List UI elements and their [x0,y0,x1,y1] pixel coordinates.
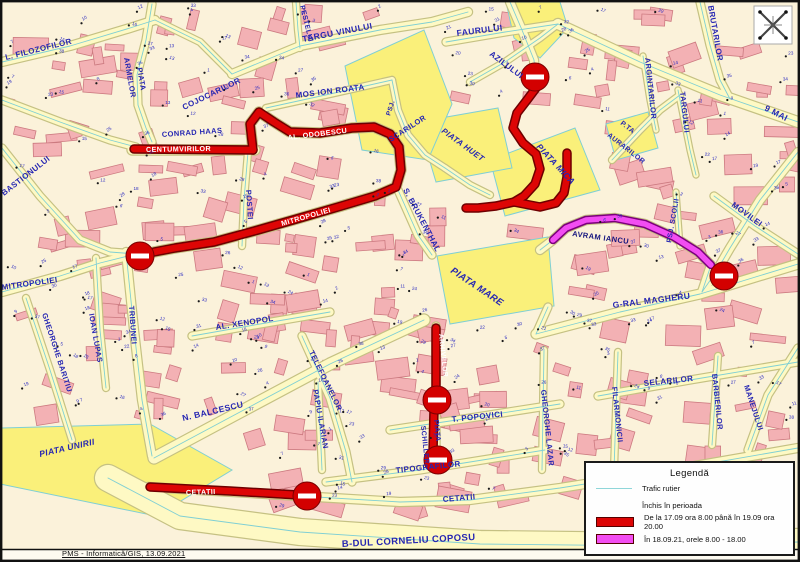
house-dot [329,498,331,500]
house-dot [275,506,277,508]
house-number: 13 [165,100,171,105]
house-dot [628,245,630,247]
legend-item-label: De la 17.09 ora 8.00 până în 19.09 ora 2… [644,513,793,531]
house-dot [772,382,774,384]
house-dot [136,11,138,13]
house-dot [45,97,47,99]
building [775,275,800,293]
house-dot [55,52,57,54]
house-dot [723,138,725,140]
house-dot [378,351,380,353]
house-dot [243,225,245,227]
building [34,404,59,426]
building [381,287,394,297]
house-dot [396,269,398,271]
house-dot [221,36,223,38]
house-dot [239,333,241,335]
house-dot [377,10,379,12]
house-dot [538,384,540,386]
building [326,330,337,347]
house-dot [726,99,728,101]
building [149,177,178,196]
legend-item-label: Trafic rutier [642,484,680,493]
building [641,14,665,26]
house-dot [656,260,658,262]
legend-item-label: Închis în perioada [642,501,702,510]
house-dot [559,447,561,449]
house-dot [628,323,630,325]
house-dot [297,13,299,15]
house-dot [189,13,191,15]
house-dot [187,7,189,9]
house-dot [779,81,781,83]
house-number: 18 [133,186,139,191]
house-dot [789,406,791,408]
legend-panel: Legendă Trafic rutier Închis în perioada… [584,461,795,556]
house-dot [369,151,371,153]
house-dot [398,254,400,256]
house-dot [266,302,268,304]
map-document: 2442616233110333112538212753323152034222… [0,0,800,562]
house-dot [771,190,773,192]
house-dot [643,389,645,391]
house-dot [97,182,99,184]
house-dot [377,470,379,472]
house-dot [476,329,478,331]
house-dot [83,298,85,300]
house-dot [295,72,297,74]
attribution-text: PMS - Informatică/GIS, 13.09.2021 [62,549,185,558]
house-dot [419,233,421,235]
no-entry-bar [131,254,149,259]
house-dot [430,437,432,439]
building [322,256,339,272]
house-dot [589,327,591,329]
house-dot [342,411,344,413]
house-dot [307,360,309,362]
house-dot [203,72,205,74]
house-dot [247,282,249,284]
house-dot [236,393,238,395]
building [105,44,124,51]
house-dot [727,384,729,386]
house-dot [675,193,677,195]
house-number: 34 [783,76,789,81]
building [321,109,340,127]
house-dot [715,309,717,311]
house-dot [538,352,540,354]
house-dot [393,323,395,325]
house-dot [714,254,716,256]
house-dot [310,83,312,85]
house-dot [9,45,11,47]
house-dot [123,335,125,337]
building [221,363,245,374]
house-dot [750,345,752,347]
house-dot [159,418,161,420]
house-dot [327,190,329,192]
house-number: 26 [225,250,231,255]
house-dot [197,192,199,194]
building [52,61,66,71]
house-number: 33 [617,213,623,218]
building [656,81,669,92]
house-dot [485,11,487,13]
building [139,165,163,173]
house-dot [334,490,336,492]
house-dot [280,95,282,97]
house-dot [464,75,466,77]
building [285,234,295,243]
house-dot [262,177,264,179]
house-dot [75,404,77,406]
house-dot [737,264,739,266]
house-dot [83,312,85,314]
house-dot [241,59,243,61]
house-dot [773,165,775,167]
building [764,126,800,137]
house-dot [336,365,338,367]
house-dot [165,58,167,60]
building [568,57,588,69]
house-dot [488,488,490,490]
house-dot [80,22,82,24]
house-dot [114,341,116,343]
house-dot [564,450,566,452]
house-number: 17 [712,156,718,161]
house-dot [417,371,419,373]
building [665,325,701,347]
no-entry-bar [526,75,544,80]
house-number: 37 [248,406,254,412]
house-dot [510,230,512,232]
house-dot [214,135,216,137]
house-dot [55,92,57,94]
traffic-line-swatch [596,488,632,489]
house-dot [144,45,146,47]
house-dot [40,265,42,267]
house-dot [313,444,315,446]
house-dot [275,59,277,61]
house-dot [79,355,81,357]
house-dot [115,206,117,208]
house-dot [324,241,326,243]
house-dot [320,303,322,305]
no-entry-bar [428,398,446,403]
house-number: 12 [100,178,106,183]
house-dot [604,356,606,358]
house-dot [315,382,317,384]
house-dot [671,83,673,85]
house-dot [70,270,72,272]
house-dot [640,245,642,247]
house-dot [283,291,285,293]
house-dot [162,104,164,106]
house-dot [105,133,107,135]
house-dot [254,373,256,375]
house-dot [336,484,338,486]
house-dot [260,283,262,285]
house-number: 15 [488,6,494,11]
house-dot [452,54,454,56]
legend-title: Legendă [586,468,793,479]
house-dot [480,405,482,407]
house-dot [705,240,707,242]
building [285,243,297,253]
house-dot [69,354,71,356]
house-dot [121,349,123,351]
house-dot [78,403,80,405]
house-dot [419,313,421,315]
house-dot [255,340,257,342]
house-dot [326,158,328,160]
legend-item-traffic: Trafic rutier [596,480,793,496]
house-dot [95,82,97,84]
house-dot [358,441,360,443]
house-dot [723,78,725,80]
building [33,142,62,156]
house-dot [583,54,585,56]
house-number: 23 [332,492,338,497]
house-dot [408,290,410,292]
house-dot [307,415,309,417]
building [683,401,711,424]
house-dot [156,319,158,321]
house-dot [655,401,657,403]
house-dot [198,300,200,302]
house-dot [82,296,84,298]
house-dot [694,101,696,103]
house-dot [701,156,703,158]
house-number: 23 [468,71,474,76]
house-dot [355,346,357,348]
house-dot [78,140,80,142]
house-dot [166,48,168,50]
house-number: 36 [284,91,290,96]
house-dot [132,359,134,361]
house-dot [538,11,540,13]
house-number: 15 [82,136,88,141]
house-dot [44,214,46,216]
house-dot [502,340,504,342]
house-dot [146,154,148,156]
house-dot [600,348,602,350]
building [194,248,223,271]
building [766,411,785,429]
building [239,78,264,98]
house-dot [731,232,733,234]
house-dot [416,341,418,343]
house-number: 38 [376,178,382,183]
house-dot [344,230,346,232]
house-dot [645,324,647,326]
house-dot [161,328,163,330]
house-dot [565,79,567,81]
house-dot [279,457,281,459]
building [575,251,609,276]
building [595,84,610,97]
house-dot [437,217,439,219]
house-dot [147,52,149,54]
house-dot [589,72,591,74]
house-dot [524,452,526,454]
building [724,154,752,175]
house-dot [241,200,243,202]
closed-period2-swatch [596,534,634,544]
house-dot [175,277,177,279]
house-number: 19 [386,491,392,496]
house-dot [142,136,144,138]
house-dot [709,161,711,163]
house-dot [331,240,333,242]
house-dot [453,381,455,383]
house-dot [420,479,422,481]
house-number: 22 [480,325,486,330]
house-dot [7,266,9,268]
house-number: 29 [381,465,387,470]
house-dot [119,199,121,201]
house-dot [31,317,33,319]
house-number: 33 [191,3,197,8]
house-dot [559,33,561,35]
house-dot [15,167,17,169]
building [145,223,174,241]
house-dot [719,114,721,116]
house-dot [519,41,521,43]
house-dot [498,95,500,97]
house-dot [128,24,130,26]
house-dot [156,240,158,242]
house-dot [13,315,15,317]
house-dot [335,412,337,414]
house-dot [264,386,266,388]
house-dot [193,329,195,331]
house-dot [382,476,384,478]
house-dot [654,11,656,13]
house-number: 24 [412,286,418,292]
house-dot [21,387,23,389]
house-number: 27 [731,379,737,384]
house-number: 38 [789,414,795,419]
legend-item-label: În 18.09.21, orele 8.00 - 18.00 [644,535,746,544]
house-dot [150,178,152,180]
house-number: 23 [788,51,794,56]
legend-item-period2: În 18.09.21, orele 8.00 - 18.00 [596,531,793,547]
house-dot [372,182,374,184]
street-label: CETATII [186,487,216,497]
house-dot [413,362,415,364]
house-dot [397,288,399,290]
house-dot [219,41,221,43]
house-number: 38 [358,341,364,346]
house-dot [715,235,717,237]
house-dot [466,84,468,86]
house-dot [614,218,616,220]
house-dot [515,327,517,329]
no-entry-bar [298,494,316,499]
house-dot [261,130,263,132]
house-dot [484,422,486,424]
building [211,156,226,175]
house-dot [115,397,117,399]
house-dot [139,412,141,414]
empty-swatch [596,505,632,506]
house-dot [130,191,132,193]
house-dot [345,425,347,427]
house-dot [384,192,386,194]
house-dot [566,311,568,313]
house-number: 27 [298,67,304,72]
house-dot [187,115,189,117]
house-dot [335,458,337,460]
house-dot [446,339,448,341]
house-dot [583,322,585,324]
house-number: 22 [705,152,711,157]
building [316,156,341,180]
house-dot [581,267,583,269]
building [679,211,696,220]
legend-item-closed-heading: Închis în perioada [596,497,793,513]
house-dot [221,254,223,256]
house-number: 26 [541,380,547,385]
house-dot [592,298,594,300]
compass-rose-icon [754,6,792,44]
house-dot [49,289,51,291]
house-dot [305,104,307,106]
house-dot [537,328,539,330]
house-dot [5,86,7,88]
house-dot [191,349,193,351]
house-dot [303,275,305,277]
house-dot [372,195,374,197]
house-dot [245,411,247,413]
house-dot [572,388,574,390]
house-dot [567,34,569,36]
building [375,357,409,380]
house-dot [601,110,603,112]
house-number: 11 [400,283,405,288]
house-dot [596,10,598,12]
house-dot [785,419,787,421]
house-dot [233,267,235,269]
house-dot [383,496,385,498]
house-dot [630,385,632,387]
building [157,329,175,347]
building [465,472,481,485]
house-dot [560,453,562,455]
closed-period1-swatch [596,517,634,527]
building [356,241,386,252]
house-dot [235,179,237,181]
building [137,197,153,209]
house-dot [560,23,562,25]
legend-item-period1: De la 17.09 ora 8.00 până în 19.09 ora 2… [596,514,793,530]
house-dot [319,225,321,227]
house-number: 13 [169,43,175,48]
no-entry-bar [715,274,733,279]
house-dot [230,363,232,365]
house-dot [444,31,446,33]
building [606,60,617,81]
building [477,365,500,385]
building [768,428,790,441]
house-dot [334,291,336,293]
street-label: CENTUMVIRILOR [146,144,212,154]
house-dot [447,348,449,350]
house-dot [670,65,672,67]
house-dot [750,168,752,170]
house-dot [752,244,754,246]
